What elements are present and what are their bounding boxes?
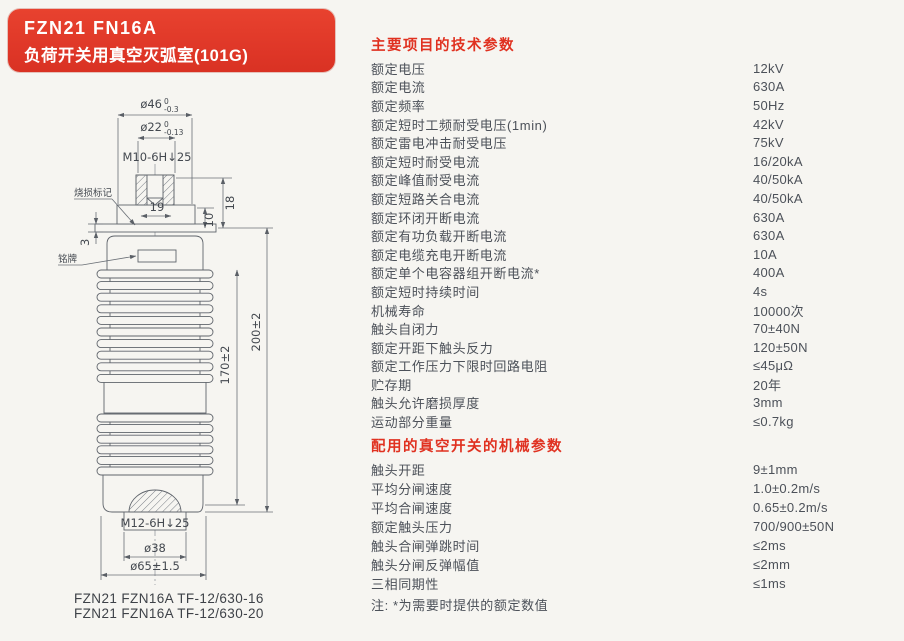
spec-row: 额定单个电容器组开断电流* 400A (371, 264, 899, 283)
svg-text:-0.3: -0.3 (164, 105, 179, 114)
spec-value: 12kV (753, 61, 899, 76)
spec-label: 触头分闸反弹幅值 (371, 555, 753, 574)
spec-value: 4s (753, 284, 899, 299)
spec-row: 额定电缆充电开断电流 10A (371, 245, 899, 264)
spec-row: 额定短时持续时间 4s (371, 282, 899, 301)
spec-row: 额定环闭开断电流 630A (371, 208, 899, 227)
thread-callout-bottom: M12-6H↓25 (121, 516, 190, 530)
dim-diameter-22: ø22 0 -0.13 (138, 120, 184, 173)
spec-value: 630A (753, 210, 899, 225)
spec-value: 120±50N (753, 340, 899, 355)
spec-label: 额定雷电冲击耐受电压 (371, 133, 753, 152)
spec-label: 机械寿命 (371, 301, 753, 320)
svg-text:170±2: 170±2 (218, 346, 232, 385)
spec-value: 10A (753, 247, 899, 262)
technical-drawing: ø46 0 -0.3 ø22 0 -0.13 M10-6H↓25 19 烧损标记… (0, 80, 360, 636)
spec-row: 额定电流 630A (371, 78, 899, 97)
spec-row: 额定短时工频耐受电压(1min) 42kV (371, 115, 899, 134)
spec-value: 40/50kA (753, 191, 899, 206)
svg-text:ø22: ø22 (140, 120, 162, 134)
spec-value: 70±40N (753, 321, 899, 336)
spec-label: 触头允许磨损厚度 (371, 393, 753, 412)
mechanical-params-section: 配用的真空开关的机械参数 触头开距 9±1mm 平均分闸速度 1.0±0.2m/… (371, 437, 899, 614)
ceramic-insulator-body (97, 268, 213, 480)
svg-text:ø65±1.5: ø65±1.5 (130, 559, 180, 573)
spec-label: 额定峰值耐受电流 (371, 170, 753, 189)
spec-value: 50Hz (753, 98, 899, 113)
spec-label: 额定短时耐受电流 (371, 152, 753, 171)
top-flange-plate (95, 224, 216, 232)
spec-label: 额定短时持续时间 (371, 282, 753, 301)
spec-label: 额定短路关合电流 (371, 189, 753, 208)
spec-row: 额定雷电冲击耐受电压 75kV (371, 133, 899, 152)
spec-label: 运动部分重量 (371, 412, 753, 431)
model-caption-1: FZN21 FZN16A TF-12/630-16 (74, 591, 264, 606)
svg-text:ø38: ø38 (144, 541, 166, 555)
product-subtitle: 负荷开关用真空灭弧室(101G) (24, 42, 327, 66)
spec-label: 额定触头压力 (371, 517, 753, 536)
spec-label: 平均分闸速度 (371, 479, 753, 498)
spec-value: 16/20kA (753, 154, 899, 169)
top-end-cap (107, 236, 203, 270)
footnote: 注: *为需要时提供的额定数值 (371, 595, 899, 614)
spec-label: 额定单个电容器组开断电流* (371, 263, 753, 282)
spec-value: ≤1ms (753, 576, 899, 591)
spec-row: 运动部分重量 ≤0.7kg (371, 412, 899, 431)
spec-label: 额定电流 (371, 77, 753, 96)
thread-callout-top: M10-6H↓25 (123, 150, 192, 164)
spec-value: 1.0±0.2m/s (753, 481, 899, 496)
spec-row: 额定频率 50Hz (371, 96, 899, 115)
spec-label: 额定频率 (371, 96, 753, 115)
spec-panel: 主要项目的技术参数 额定电压 12kV 额定电流 630A 额定频率 50Hz … (371, 36, 899, 614)
spec-label: 额定有功负载开断电流 (371, 226, 753, 245)
spec-row: 平均分闸速度 1.0±0.2m/s (371, 479, 899, 498)
dim-diameter-38: ø38 (124, 532, 186, 561)
spec-value: 3mm (753, 395, 899, 410)
mechanical-params-list: 触头开距 9±1mm 平均分闸速度 1.0±0.2m/s 平均合闸速度 0.65… (371, 460, 899, 593)
spec-value: 630A (753, 228, 899, 243)
spec-row: 额定电压 12kV (371, 59, 899, 78)
spec-value: 0.65±0.2m/s (753, 500, 899, 515)
spec-row: 额定工作压力下限时回路电阻 ≤45μΩ (371, 357, 899, 376)
product-title-card: FZN21 FN16A 负荷开关用真空灭弧室(101G) (8, 9, 335, 72)
spec-label: 额定短时工频耐受电压(1min) (371, 115, 753, 134)
spec-value: 10000次 (753, 301, 899, 320)
spec-label: 触头合闸弹跳时间 (371, 536, 753, 555)
svg-text:19: 19 (150, 200, 165, 214)
spec-label: 三相同期性 (371, 574, 753, 593)
spec-row: 额定有功负载开断电流 630A (371, 226, 899, 245)
spec-row: 额定短时耐受电流 16/20kA (371, 152, 899, 171)
dim-length-200: 200±2 (205, 228, 273, 512)
spec-value: 75kV (753, 135, 899, 150)
svg-text:ø46: ø46 (140, 97, 162, 111)
spec-value: ≤2mm (753, 557, 899, 572)
product-model: FZN21 FN16A (24, 18, 327, 39)
svg-text:200±2: 200±2 (249, 313, 263, 352)
spec-value: 42kV (753, 117, 899, 132)
main-params-title: 主要项目的技术参数 (371, 36, 899, 56)
svg-text:18: 18 (223, 196, 237, 211)
spec-value: ≤2ms (753, 538, 899, 553)
mechanical-params-title: 配用的真空开关的机械参数 (371, 437, 899, 457)
svg-text:-0.13: -0.13 (164, 128, 184, 137)
spec-value: ≤0.7kg (753, 414, 899, 429)
spec-label: 额定工作压力下限时回路电阻 (371, 356, 753, 375)
main-params-list: 额定电压 12kV 额定电流 630A 额定频率 50Hz 额定短时工频耐受电压… (371, 59, 899, 431)
vacuum-interrupter-outline-drawing: ø46 0 -0.3 ø22 0 -0.13 M10-6H↓25 19 烧损标记… (0, 80, 360, 636)
spec-value: 700/900±50N (753, 519, 899, 534)
spec-row: 额定开距下触头反力 120±50N (371, 338, 899, 357)
spec-row: 机械寿命 10000次 (371, 301, 899, 320)
spec-row: 触头分闸反弹幅值 ≤2mm (371, 555, 899, 574)
svg-text:10: 10 (202, 213, 216, 228)
spec-value: ≤45μΩ (753, 358, 899, 373)
spec-row: 额定短路关合电流 40/50kA (371, 189, 899, 208)
spec-label: 贮存期 (371, 375, 753, 394)
svg-text:铭牌: 铭牌 (58, 253, 78, 265)
spec-row: 额定触头压力 700/900±50N (371, 517, 899, 536)
spec-label: 触头开距 (371, 460, 753, 479)
nameplate (138, 250, 176, 262)
spec-value: 40/50kA (753, 172, 899, 187)
spec-row: 触头合闸弹跳时间 ≤2ms (371, 536, 899, 555)
spec-row: 平均合闸速度 0.65±0.2m/s (371, 498, 899, 517)
spec-label: 额定环闭开断电流 (371, 208, 753, 227)
spec-row: 额定峰值耐受电流 40/50kA (371, 171, 899, 190)
spec-row: 贮存期 20年 (371, 375, 899, 394)
spec-label: 触头自闭力 (371, 319, 753, 338)
spec-label: 平均合闸速度 (371, 498, 753, 517)
spec-value: 630A (753, 79, 899, 94)
spec-row: 触头允许磨损厚度 3mm (371, 394, 899, 413)
spec-label: 额定开距下触头反力 (371, 338, 753, 357)
spec-label: 额定电缆充电开断电流 (371, 245, 753, 264)
svg-text:烧损标记: 烧损标记 (74, 187, 113, 199)
model-caption-2: FZN21 FZN16A TF-12/630-20 (74, 606, 264, 621)
spec-value: 20年 (753, 375, 899, 394)
spec-row: 触头自闭力 70±40N (371, 319, 899, 338)
spec-value: 9±1mm (753, 462, 899, 477)
spec-row: 触头开距 9±1mm (371, 460, 899, 479)
spec-row: 三相同期性 ≤1ms (371, 574, 899, 593)
spec-value: 400A (753, 265, 899, 280)
spec-label: 额定电压 (371, 59, 753, 78)
svg-text:3: 3 (78, 239, 92, 246)
